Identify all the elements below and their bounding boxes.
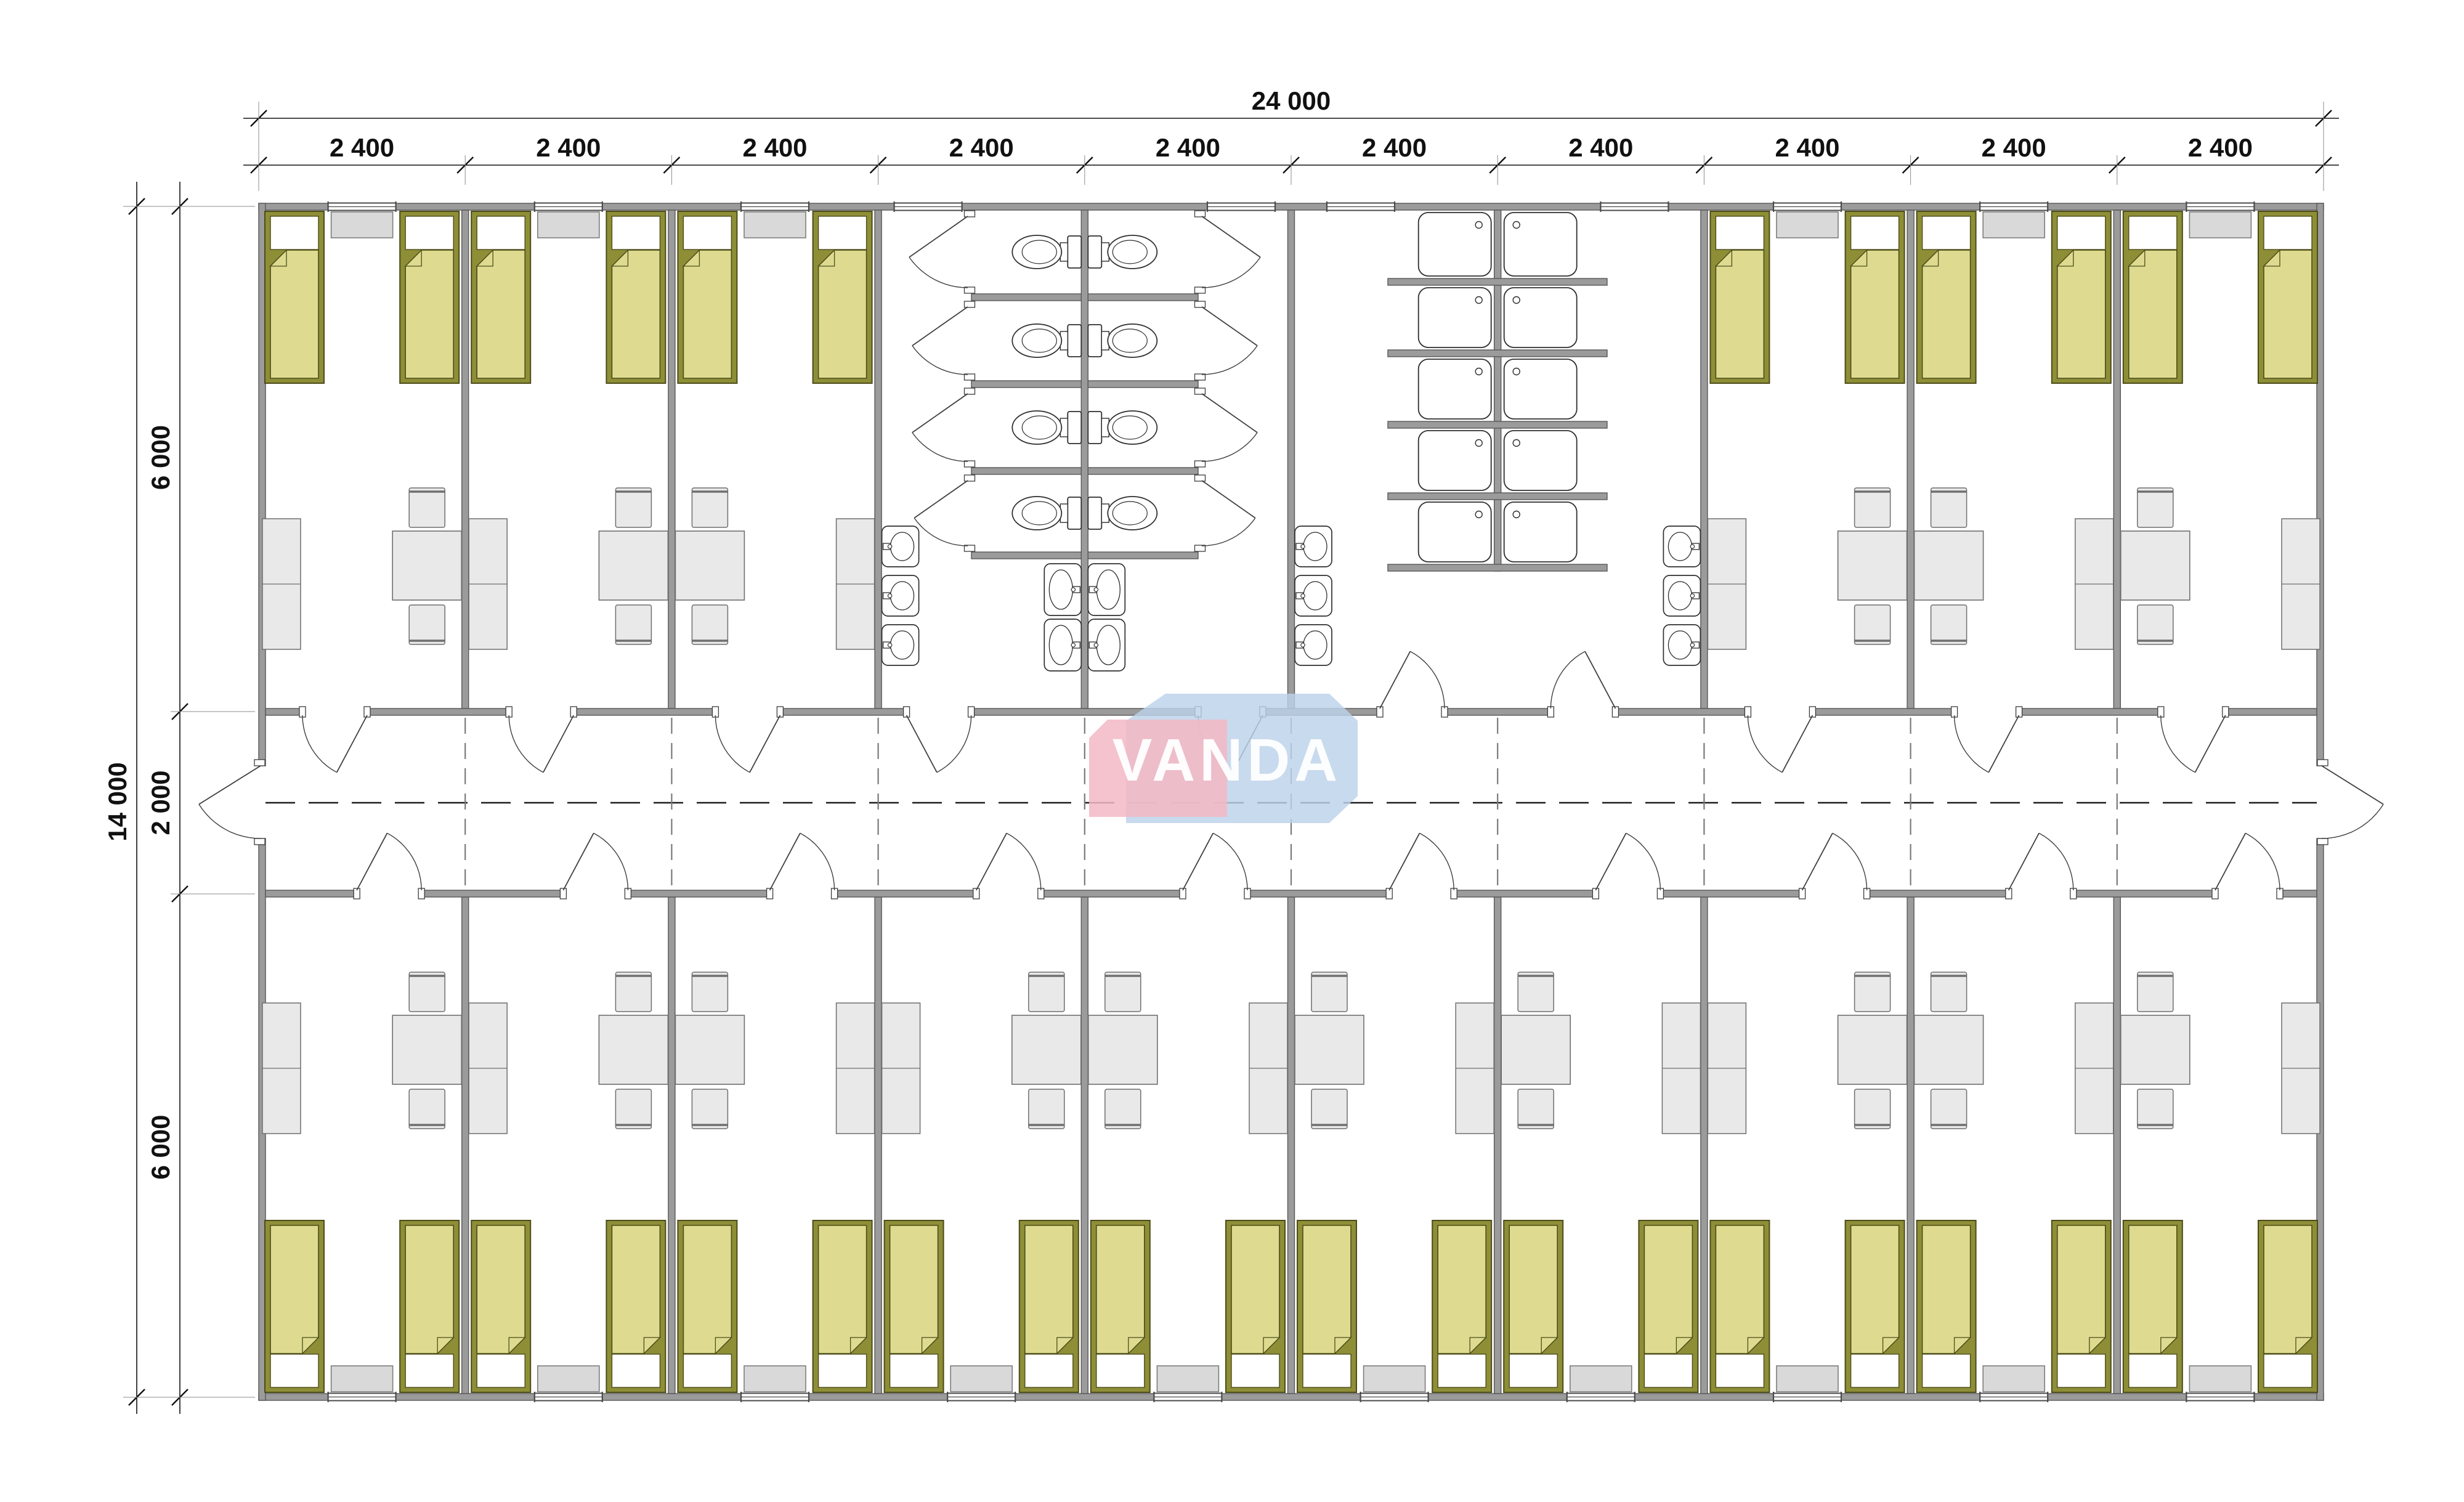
bed — [606, 1220, 665, 1392]
table — [599, 531, 668, 600]
dimension-label: 2 400 — [2188, 133, 2253, 162]
sideboard — [837, 1003, 875, 1134]
chair — [615, 1089, 651, 1129]
window-bottom — [1567, 1392, 1635, 1402]
chair — [1855, 488, 1891, 527]
sideboard — [1708, 1003, 1746, 1134]
chair — [692, 488, 727, 527]
wc-stall-door — [909, 216, 968, 288]
door-leaf — [337, 715, 367, 773]
bed — [1710, 211, 1769, 383]
table — [392, 1015, 461, 1084]
corridor-wall-bottom — [265, 890, 357, 897]
chair — [409, 488, 445, 527]
corridor-wall-top — [1615, 708, 1748, 715]
shower-tray — [1504, 288, 1577, 347]
room-door — [715, 715, 780, 773]
table — [1915, 531, 1984, 600]
reference-lines-layer — [265, 718, 2317, 888]
door-leaf — [1988, 715, 2019, 773]
wc-partition — [971, 294, 1081, 301]
bed — [265, 1220, 324, 1392]
sink — [1295, 526, 1332, 567]
bed — [2258, 1220, 2317, 1392]
sideboard — [1249, 1003, 1287, 1134]
wardrobe — [2189, 212, 2251, 238]
door-leaf — [1380, 651, 1410, 708]
window-top — [1327, 201, 1395, 212]
window-top — [894, 201, 962, 212]
window-bottom — [2186, 1392, 2254, 1402]
door-post — [2317, 838, 2328, 845]
sink — [882, 526, 919, 567]
sideboard — [1662, 1003, 1700, 1134]
shower-partition — [1388, 493, 1607, 500]
chair — [1311, 1089, 1347, 1129]
window-top — [1600, 201, 1668, 212]
door-post — [254, 838, 265, 845]
dividing-wall-top — [1907, 210, 1914, 708]
door-post — [965, 388, 975, 394]
dividing-wall-top — [1081, 210, 1088, 708]
door-leaf — [2195, 715, 2226, 773]
bed — [1710, 1220, 1769, 1392]
wardrobe — [538, 212, 599, 238]
dimension-label: 2 000 — [146, 770, 175, 835]
wardrobe — [2189, 1366, 2251, 1392]
sink — [1044, 619, 1081, 671]
chair — [1105, 1089, 1141, 1129]
corridor-wall-bottom — [1041, 890, 1183, 897]
dividing-wall-bottom — [1907, 897, 1914, 1394]
dividing-wall-bottom — [2113, 897, 2120, 1394]
bed — [1917, 1220, 1976, 1392]
door-leaf — [543, 715, 573, 773]
shower-door — [1380, 651, 1445, 708]
entrance-door-right — [2322, 766, 2383, 838]
chair — [1931, 972, 1967, 1012]
sink — [882, 575, 919, 616]
sideboard — [2282, 1003, 2320, 1134]
dimension-label: 2 400 — [1156, 133, 1220, 162]
door-leaf — [199, 766, 261, 805]
bed — [1091, 1220, 1150, 1392]
door-post — [1195, 211, 1206, 217]
table — [392, 531, 461, 600]
sink — [1295, 575, 1332, 616]
door-leaf — [1389, 833, 1419, 890]
dividing-wall-bottom — [1081, 897, 1088, 1394]
toilet — [1012, 235, 1081, 269]
sideboard — [882, 1003, 920, 1134]
door-leaf — [770, 833, 800, 890]
sideboard — [262, 1003, 301, 1134]
bed — [813, 1220, 872, 1392]
window-bottom — [1361, 1392, 1429, 1402]
room-door — [2161, 715, 2226, 773]
wc-partition — [1088, 381, 1198, 388]
dividing-wall-bottom — [1494, 897, 1501, 1394]
chair — [1518, 1089, 1554, 1129]
shower-partition — [1388, 421, 1607, 428]
door-leaf — [912, 394, 968, 432]
bed — [471, 1220, 530, 1392]
bed — [1639, 1220, 1698, 1392]
chair — [1855, 1089, 1891, 1129]
window-top — [1773, 201, 1841, 212]
wardrobe — [744, 1366, 806, 1392]
shower-tray — [1504, 359, 1577, 419]
room-door — [907, 715, 971, 773]
window-bottom — [947, 1392, 1015, 1402]
shower-partition — [1388, 278, 1607, 285]
bed — [2052, 211, 2111, 383]
corridor-wall-top — [1812, 708, 1954, 715]
sink — [1663, 526, 1700, 567]
dividing-wall-bottom — [668, 897, 675, 1394]
bed — [1226, 1220, 1285, 1392]
wardrobe — [331, 1366, 393, 1392]
room-door — [1595, 833, 1660, 890]
chair — [1311, 972, 1347, 1012]
wc-stall-end-wall — [1088, 552, 1198, 559]
dividing-wall-bottom — [875, 897, 881, 1394]
wardrobe — [1570, 1366, 1632, 1392]
dimension-label: 2 400 — [1568, 133, 1633, 162]
shower-tray — [1504, 431, 1577, 490]
table — [1501, 1015, 1570, 1084]
window-bottom — [535, 1392, 602, 1402]
wardrobe — [744, 212, 806, 238]
bed — [2052, 1220, 2111, 1392]
sink — [1044, 564, 1081, 615]
room-door — [1389, 833, 1454, 890]
sideboard — [1708, 519, 1746, 649]
corridor-wall-top — [367, 708, 509, 715]
door-leaf — [1202, 394, 1257, 432]
chair — [2138, 972, 2173, 1012]
door-leaf — [1233, 715, 1263, 773]
wc-partition — [971, 468, 1081, 474]
chair — [2138, 488, 2173, 527]
bed — [1432, 1220, 1491, 1392]
corridor-wall-top — [780, 708, 906, 715]
table — [2121, 531, 2190, 600]
wc-stall-door — [1202, 216, 1260, 288]
chair — [409, 605, 445, 644]
shower-tray — [1504, 213, 1577, 276]
table — [1915, 1015, 1984, 1084]
door-leaf — [909, 216, 968, 258]
chair — [409, 1089, 445, 1129]
door-leaf — [1782, 715, 1812, 773]
sideboard — [262, 519, 301, 649]
corridor-wall-top — [573, 708, 715, 715]
door-leaf — [563, 833, 593, 890]
chair — [692, 1089, 727, 1129]
corridor-wall-bottom — [2073, 890, 2215, 897]
door-leaf — [750, 715, 780, 773]
corridor-wall-top — [1445, 708, 1550, 715]
table — [1088, 1015, 1157, 1084]
sideboard — [2075, 519, 2113, 649]
floor-plan-svg: 24 0002 4002 4002 4002 4002 4002 4002 40… — [0, 0, 2464, 1502]
door-leaf — [1183, 833, 1213, 890]
bed — [1846, 211, 1905, 383]
wc-stall-door — [1202, 307, 1257, 375]
bed — [1504, 1220, 1563, 1392]
sideboard — [469, 1003, 507, 1134]
chair — [2138, 1089, 2173, 1129]
dimension-label: 6 000 — [146, 1114, 175, 1179]
shower-door — [1550, 651, 1615, 708]
sideboard — [2282, 519, 2320, 649]
bed — [678, 1220, 737, 1392]
chair — [1029, 972, 1064, 1012]
window-top — [741, 201, 809, 212]
wc-stall-door — [914, 481, 968, 546]
window-top — [1207, 201, 1275, 212]
table — [599, 1015, 668, 1084]
shower-tray — [1419, 288, 1491, 347]
corridor-wall-bottom — [1454, 890, 1595, 897]
room-door — [2009, 833, 2073, 890]
chair — [1931, 605, 1967, 644]
sideboard — [469, 519, 507, 649]
window-bottom — [1773, 1392, 1841, 1402]
shower-tray — [1419, 213, 1491, 276]
corridor-wall-bottom — [628, 890, 769, 897]
corridor-wall-top — [1263, 708, 1380, 715]
dividing-wall-top — [875, 210, 881, 708]
door-leaf — [357, 833, 387, 890]
floor-plan-page: 24 0002 4002 4002 4002 4002 4002 4002 40… — [0, 0, 2464, 1502]
toilet — [1012, 497, 1081, 530]
door-post — [965, 301, 975, 307]
wc-stall-door — [912, 394, 968, 461]
bed — [678, 211, 737, 383]
corridor-wall-top — [265, 708, 302, 715]
shower-tray — [1419, 431, 1491, 490]
chair — [1931, 488, 1967, 527]
table — [1838, 1015, 1907, 1084]
toilet — [1012, 324, 1081, 357]
corridor-wall-bottom — [421, 890, 563, 897]
wc-stall-end-wall — [971, 552, 1081, 559]
sideboard — [1456, 1003, 1494, 1134]
toilet — [1012, 411, 1081, 444]
corridor-wall-bottom — [1867, 890, 2009, 897]
door-leaf — [912, 307, 968, 346]
table — [675, 531, 744, 600]
door-post — [965, 475, 975, 481]
room-door — [1802, 833, 1867, 890]
wc-partition — [971, 381, 1081, 388]
wardrobe — [1983, 1366, 2045, 1392]
chair — [1855, 605, 1891, 644]
bed — [606, 211, 665, 383]
chair — [615, 488, 651, 527]
bed — [265, 211, 324, 383]
window-bottom — [741, 1392, 809, 1402]
bed — [1019, 1220, 1079, 1392]
room-door — [976, 833, 1041, 890]
room-door — [770, 833, 835, 890]
dividing-wall-bottom — [1288, 897, 1295, 1394]
window-top — [535, 201, 602, 212]
chair — [1855, 972, 1891, 1012]
door-leaf — [2322, 766, 2383, 805]
corridor-wall-top — [2019, 708, 2161, 715]
dimension-label: 14 000 — [103, 762, 132, 841]
door-leaf — [1802, 833, 1833, 890]
wardrobe — [1777, 212, 1838, 238]
door-post — [254, 760, 265, 766]
wc-partition — [1088, 294, 1198, 301]
sink — [1088, 564, 1125, 615]
door-leaf — [2009, 833, 2039, 890]
toilet — [1088, 235, 1157, 269]
wardrobe — [950, 1366, 1012, 1392]
room-door — [509, 715, 573, 773]
chair — [409, 972, 445, 1012]
dividing-wall-bottom — [462, 897, 469, 1394]
table — [1295, 1015, 1364, 1084]
sink — [1663, 625, 1700, 665]
window-bottom — [1154, 1392, 1222, 1402]
door-leaf — [914, 481, 968, 518]
dimension-label: 2 400 — [1775, 133, 1839, 162]
corridor-wall-top — [971, 708, 1198, 715]
door-post — [965, 211, 975, 217]
room-door — [302, 715, 367, 773]
table — [675, 1015, 744, 1084]
window-top — [2186, 201, 2254, 212]
dividing-wall-top — [462, 210, 469, 708]
door-leaf — [907, 715, 937, 773]
bed — [1297, 1220, 1356, 1392]
bed — [2123, 211, 2182, 383]
bed — [400, 211, 459, 383]
door-post — [1195, 301, 1206, 307]
dimension-label: 2 400 — [742, 133, 807, 162]
shower-tray — [1504, 502, 1577, 562]
wc-stall-door — [1202, 394, 1257, 461]
wardrobe — [538, 1366, 599, 1392]
shower-partition — [1388, 350, 1607, 357]
chair — [1029, 1089, 1064, 1129]
door-leaf — [1202, 216, 1260, 258]
dividing-wall-top — [668, 210, 675, 708]
chair — [1105, 972, 1141, 1012]
table — [1012, 1015, 1081, 1084]
dimension-label: 2 400 — [330, 133, 394, 162]
corridor-wall-bottom — [2280, 890, 2317, 897]
shower-spine-wall — [1494, 210, 1501, 571]
dimension-label: 2 400 — [949, 133, 1014, 162]
dividing-wall-bottom — [1701, 897, 1708, 1394]
wardrobe — [1157, 1366, 1218, 1392]
toilet — [1088, 497, 1157, 530]
door-leaf — [1202, 307, 1257, 346]
sink — [1088, 619, 1125, 671]
shower-tray — [1419, 359, 1491, 419]
window-top — [1980, 201, 2048, 212]
room-door — [1198, 715, 1263, 773]
dividing-wall-top — [1701, 210, 1708, 708]
chair — [615, 605, 651, 644]
chair — [692, 605, 727, 644]
table — [2121, 1015, 2190, 1084]
sideboard — [837, 519, 875, 649]
wardrobe — [1364, 1366, 1425, 1392]
wardrobe — [1777, 1366, 1838, 1392]
sink — [1663, 575, 1700, 616]
wc-stall-door — [912, 307, 968, 375]
window-bottom — [328, 1392, 396, 1402]
corridor-wall-top — [2226, 708, 2317, 715]
dimension-label: 2 400 — [1982, 133, 2046, 162]
door-leaf — [1585, 651, 1615, 708]
chair — [2138, 605, 2173, 644]
window-bottom — [1980, 1392, 2048, 1402]
dimension-label: 6 000 — [146, 425, 175, 490]
room-door — [357, 833, 421, 890]
door-post — [2317, 760, 2328, 766]
sideboard — [2075, 1003, 2113, 1134]
corridor-wall-bottom — [1660, 890, 1802, 897]
room-door — [1183, 833, 1247, 890]
bed — [2123, 1220, 2182, 1392]
dimension-label: 2 400 — [536, 133, 601, 162]
toilet — [1088, 411, 1157, 444]
room-door — [2215, 833, 2280, 890]
bed — [471, 211, 530, 383]
dimension-label: 2 400 — [1362, 133, 1427, 162]
room-door — [1955, 715, 2019, 773]
dividing-wall-top — [1288, 210, 1295, 708]
room-door — [563, 833, 628, 890]
bed — [1846, 1220, 1905, 1392]
sink — [1295, 625, 1332, 665]
bed — [1917, 211, 1976, 383]
dimension-label: 24 000 — [1252, 86, 1331, 115]
shower-tray — [1419, 502, 1491, 562]
chair — [1931, 1089, 1967, 1129]
dividing-wall-top — [2113, 210, 2120, 708]
sink — [882, 625, 919, 665]
window-top — [328, 201, 396, 212]
wardrobe — [331, 212, 393, 238]
door-leaf — [1595, 833, 1626, 890]
corridor-wall-bottom — [1247, 890, 1389, 897]
shower-block-end-wall — [1388, 564, 1607, 571]
table — [1838, 531, 1907, 600]
bed — [2258, 211, 2317, 383]
corridor-wall-bottom — [835, 890, 976, 897]
door-leaf — [1202, 481, 1255, 518]
door-post — [1195, 388, 1206, 394]
entrance-door-left — [199, 766, 261, 838]
bed — [400, 1220, 459, 1392]
door-leaf — [2215, 833, 2245, 890]
door-post — [1195, 475, 1206, 481]
toilet — [1088, 324, 1157, 357]
chair — [615, 972, 651, 1012]
room-door — [1748, 715, 1812, 773]
wc-stall-door — [1202, 481, 1255, 546]
chair — [692, 972, 727, 1012]
